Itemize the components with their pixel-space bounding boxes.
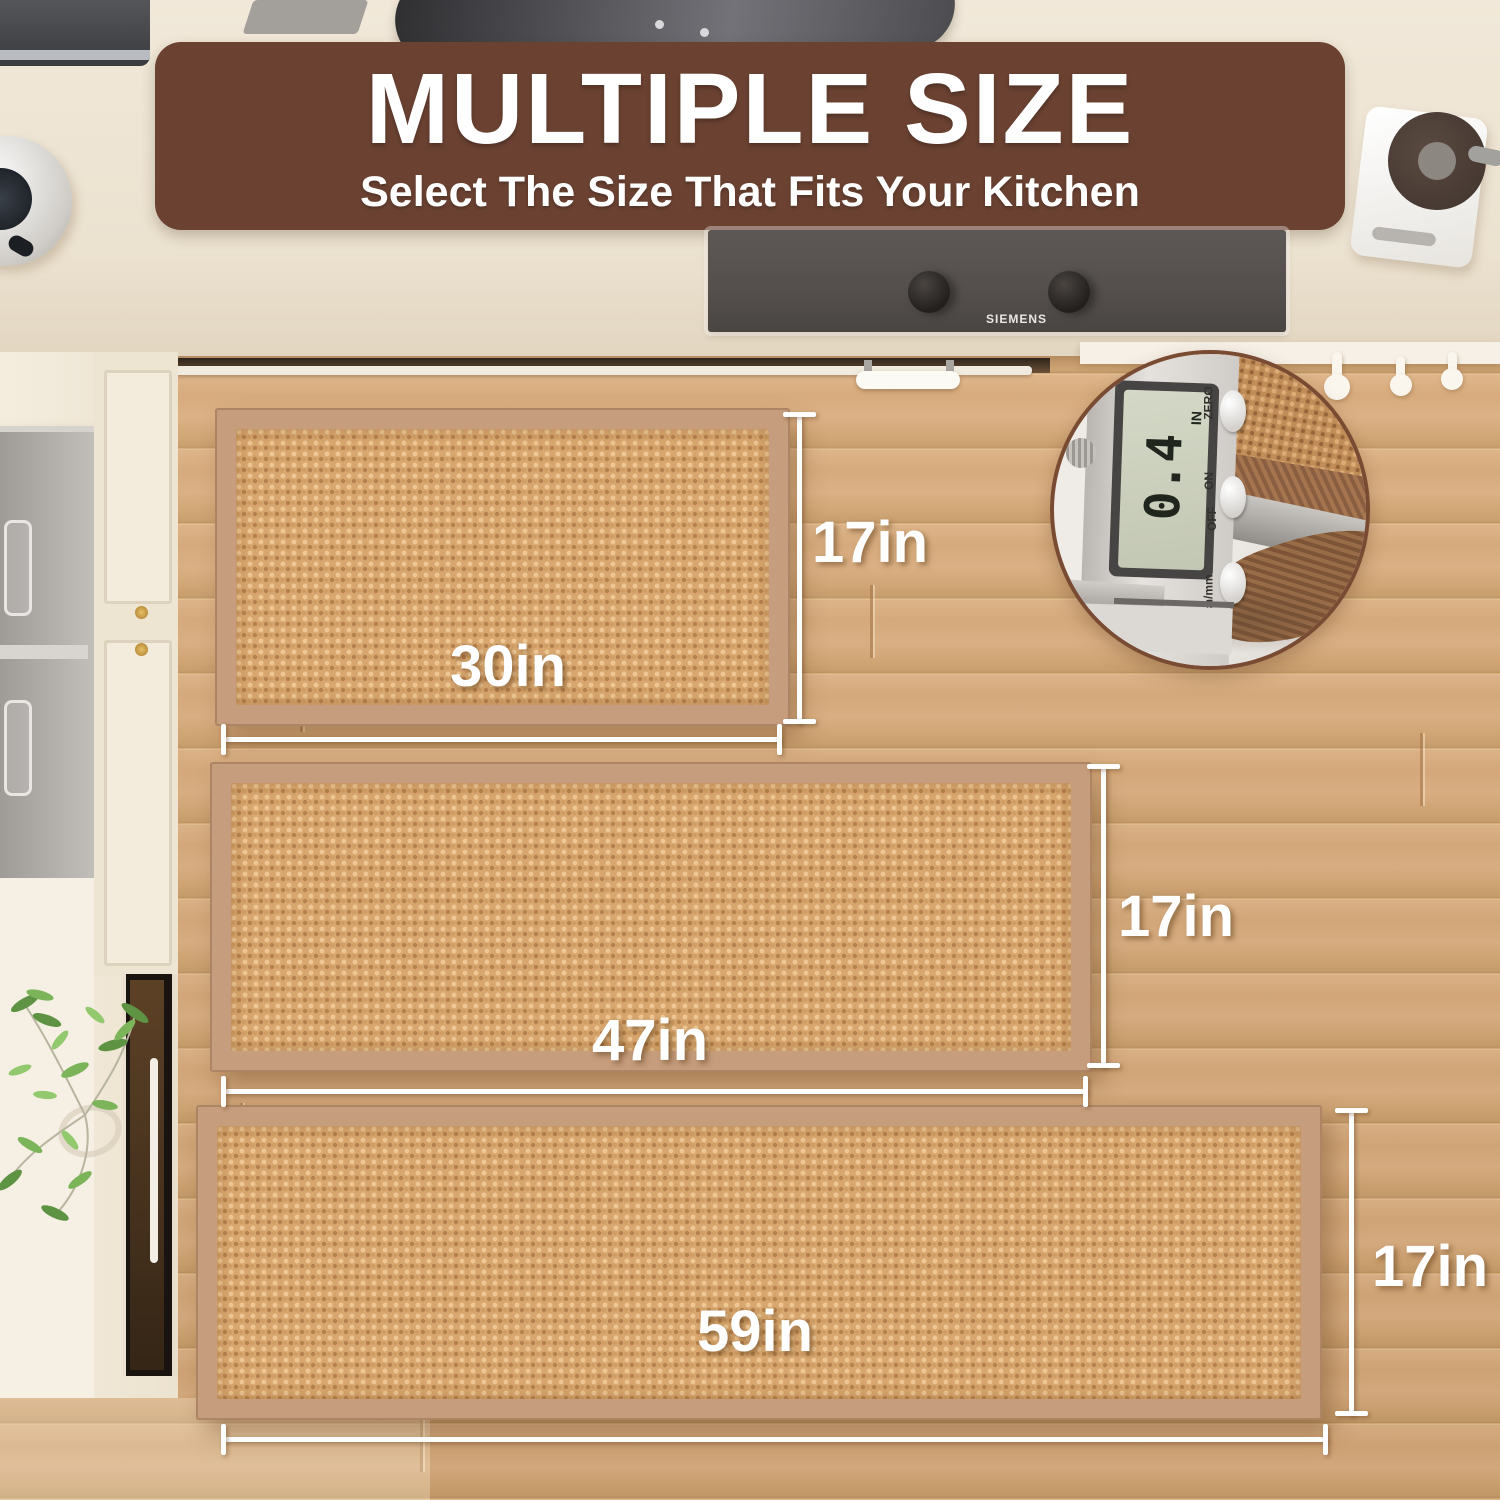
rug-30-height-tick-top	[783, 412, 816, 417]
rug-59-width-label: 59in	[665, 1303, 845, 1361]
rug-59-height-tick-bottom	[1335, 1411, 1368, 1416]
rug-30-width-tick-left	[221, 724, 226, 755]
rug-47-width-line	[223, 1089, 1087, 1094]
rug-47-width-tick-left	[221, 1076, 226, 1107]
wall-hook	[1441, 368, 1463, 390]
fridge-handle-recess	[4, 520, 32, 616]
drawer-handle	[856, 371, 960, 389]
cooktop-brand: SIEMENS	[986, 312, 1047, 326]
cabinet-knob	[135, 606, 148, 619]
rug-47-height-label: 17in	[1118, 888, 1234, 946]
rug-59-height-line	[1349, 1110, 1354, 1416]
caliper-reading: 0.4	[1134, 429, 1193, 525]
rug-30-width-label: 30in	[418, 638, 598, 696]
iron-detail	[655, 20, 664, 29]
rug-47-height-tick-top	[1087, 764, 1120, 769]
rug-30-height-label: 17in	[812, 514, 928, 572]
caliper-button	[1220, 476, 1246, 518]
rug-59x17	[196, 1105, 1322, 1420]
fridge-handle-recess	[4, 700, 32, 796]
rug-30-height-line	[797, 414, 802, 724]
floor-plank-seam	[1420, 733, 1423, 806]
caliper-button	[1220, 390, 1246, 432]
headline-banner: MULTIPLE SIZE Select The Size That Fits …	[155, 42, 1345, 230]
caliper-jaw-base	[1081, 603, 1233, 654]
wall-hook	[1390, 374, 1412, 396]
caliper-off-label: OFF	[1205, 507, 1219, 531]
rug-47-width-tick-right	[1083, 1076, 1088, 1107]
potted-plant	[0, 975, 185, 1245]
coffee-maker-lid-center	[1418, 142, 1456, 180]
cooktop-knob	[1048, 271, 1090, 313]
rug-47-width-label: 47in	[560, 1012, 740, 1070]
thickness-inset: 0.4 IN ZERO ON OFF inch/mm	[1050, 350, 1370, 670]
floor-plank-seam	[870, 585, 873, 658]
cooktop-knob	[908, 271, 950, 313]
rug-47-height-line	[1101, 766, 1106, 1068]
rug-59-width-line	[223, 1437, 1327, 1442]
caliper-button	[1220, 562, 1246, 604]
rug-30-width-tick-right	[777, 724, 782, 755]
rug-59-width-tick-right	[1323, 1424, 1328, 1455]
rug-30-width-line	[223, 737, 781, 742]
rug-47-height-tick-bottom	[1087, 1063, 1120, 1068]
cooktop: SIEMENS	[708, 230, 1286, 332]
rug-59-height-tick-top	[1335, 1108, 1368, 1113]
caliper-thumb-wheel	[1066, 438, 1096, 468]
caliper-lcd: 0.4 IN	[1118, 390, 1210, 571]
rug-30-height-tick-bottom	[783, 719, 816, 724]
cabinet-knob	[135, 643, 148, 656]
fridge-divider	[0, 645, 88, 659]
product-image: MULTIPLE SIZE Select The Size That Fits …	[0, 0, 1500, 1500]
banner-subtitle: Select The Size That Fits Your Kitchen	[360, 171, 1140, 214]
metal-tray	[242, 0, 368, 34]
banner-title: MULTIPLE SIZE	[366, 59, 1135, 159]
caliper-on-label: ON	[1202, 472, 1216, 490]
rug-59-width-tick-left	[221, 1424, 226, 1455]
iron-detail	[700, 28, 709, 37]
cabinet-panel	[104, 640, 172, 966]
caliper-zero-label: ZERO	[1202, 386, 1216, 419]
appliance-trim	[0, 50, 150, 60]
cabinet-panel	[104, 370, 172, 604]
rug-59-height-label: 17in	[1372, 1238, 1488, 1296]
